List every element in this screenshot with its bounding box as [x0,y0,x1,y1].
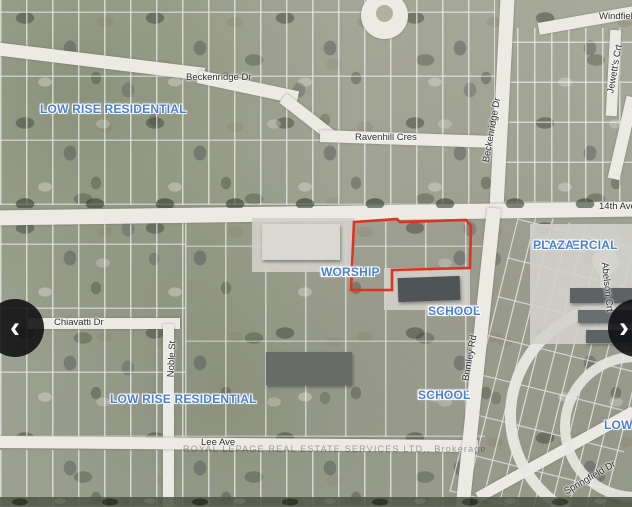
building-private-school-2 [266,352,352,385]
building-private-school-1 [398,276,461,302]
zone-line: SCHOOL [418,389,471,402]
street-label-noble-st: Noble St [166,341,179,378]
zone-line: PLAZA [533,239,574,252]
treeline-14th-ave [0,186,632,208]
chevron-right-icon: › [619,313,629,343]
street-label-chiavatti-dr: Chiavatti Dr [54,317,104,328]
cul-de-sac-island [376,5,393,22]
chevron-left-icon: ‹ [10,313,20,343]
watermark: ROYAL LEPAGE REAL ESTATE SERVICES LTD., … [183,444,487,454]
street-label-beckenridge-dr: Beckenridge Dr [186,72,251,83]
building-place-of-worship [262,224,340,260]
street-label-ravenhill-cres: Ravenhill Cres [355,132,417,143]
aerial-map[interactable]: Beckenridge Dr Ravenhill Cres Beckenridg… [0,0,632,507]
zone-label-low-rise-residential-3: LOW RISE RESIDENTIAL [604,419,632,432]
zone-label-low-rise-residential-2: LOW RISE RESIDENTIAL [110,393,257,406]
street-label-14th-ave: 14th Ave [599,201,632,212]
zone-line: WORSHIP [321,266,380,279]
zone-label-low-rise-residential-1: LOW RISE RESIDENTIAL [40,103,187,116]
hedge-bottom-edge [0,497,632,507]
road-chiavatti-dr [28,318,180,329]
zone-line: SCHOOL [428,305,481,318]
street-label-windfield: Windfield [599,11,632,22]
